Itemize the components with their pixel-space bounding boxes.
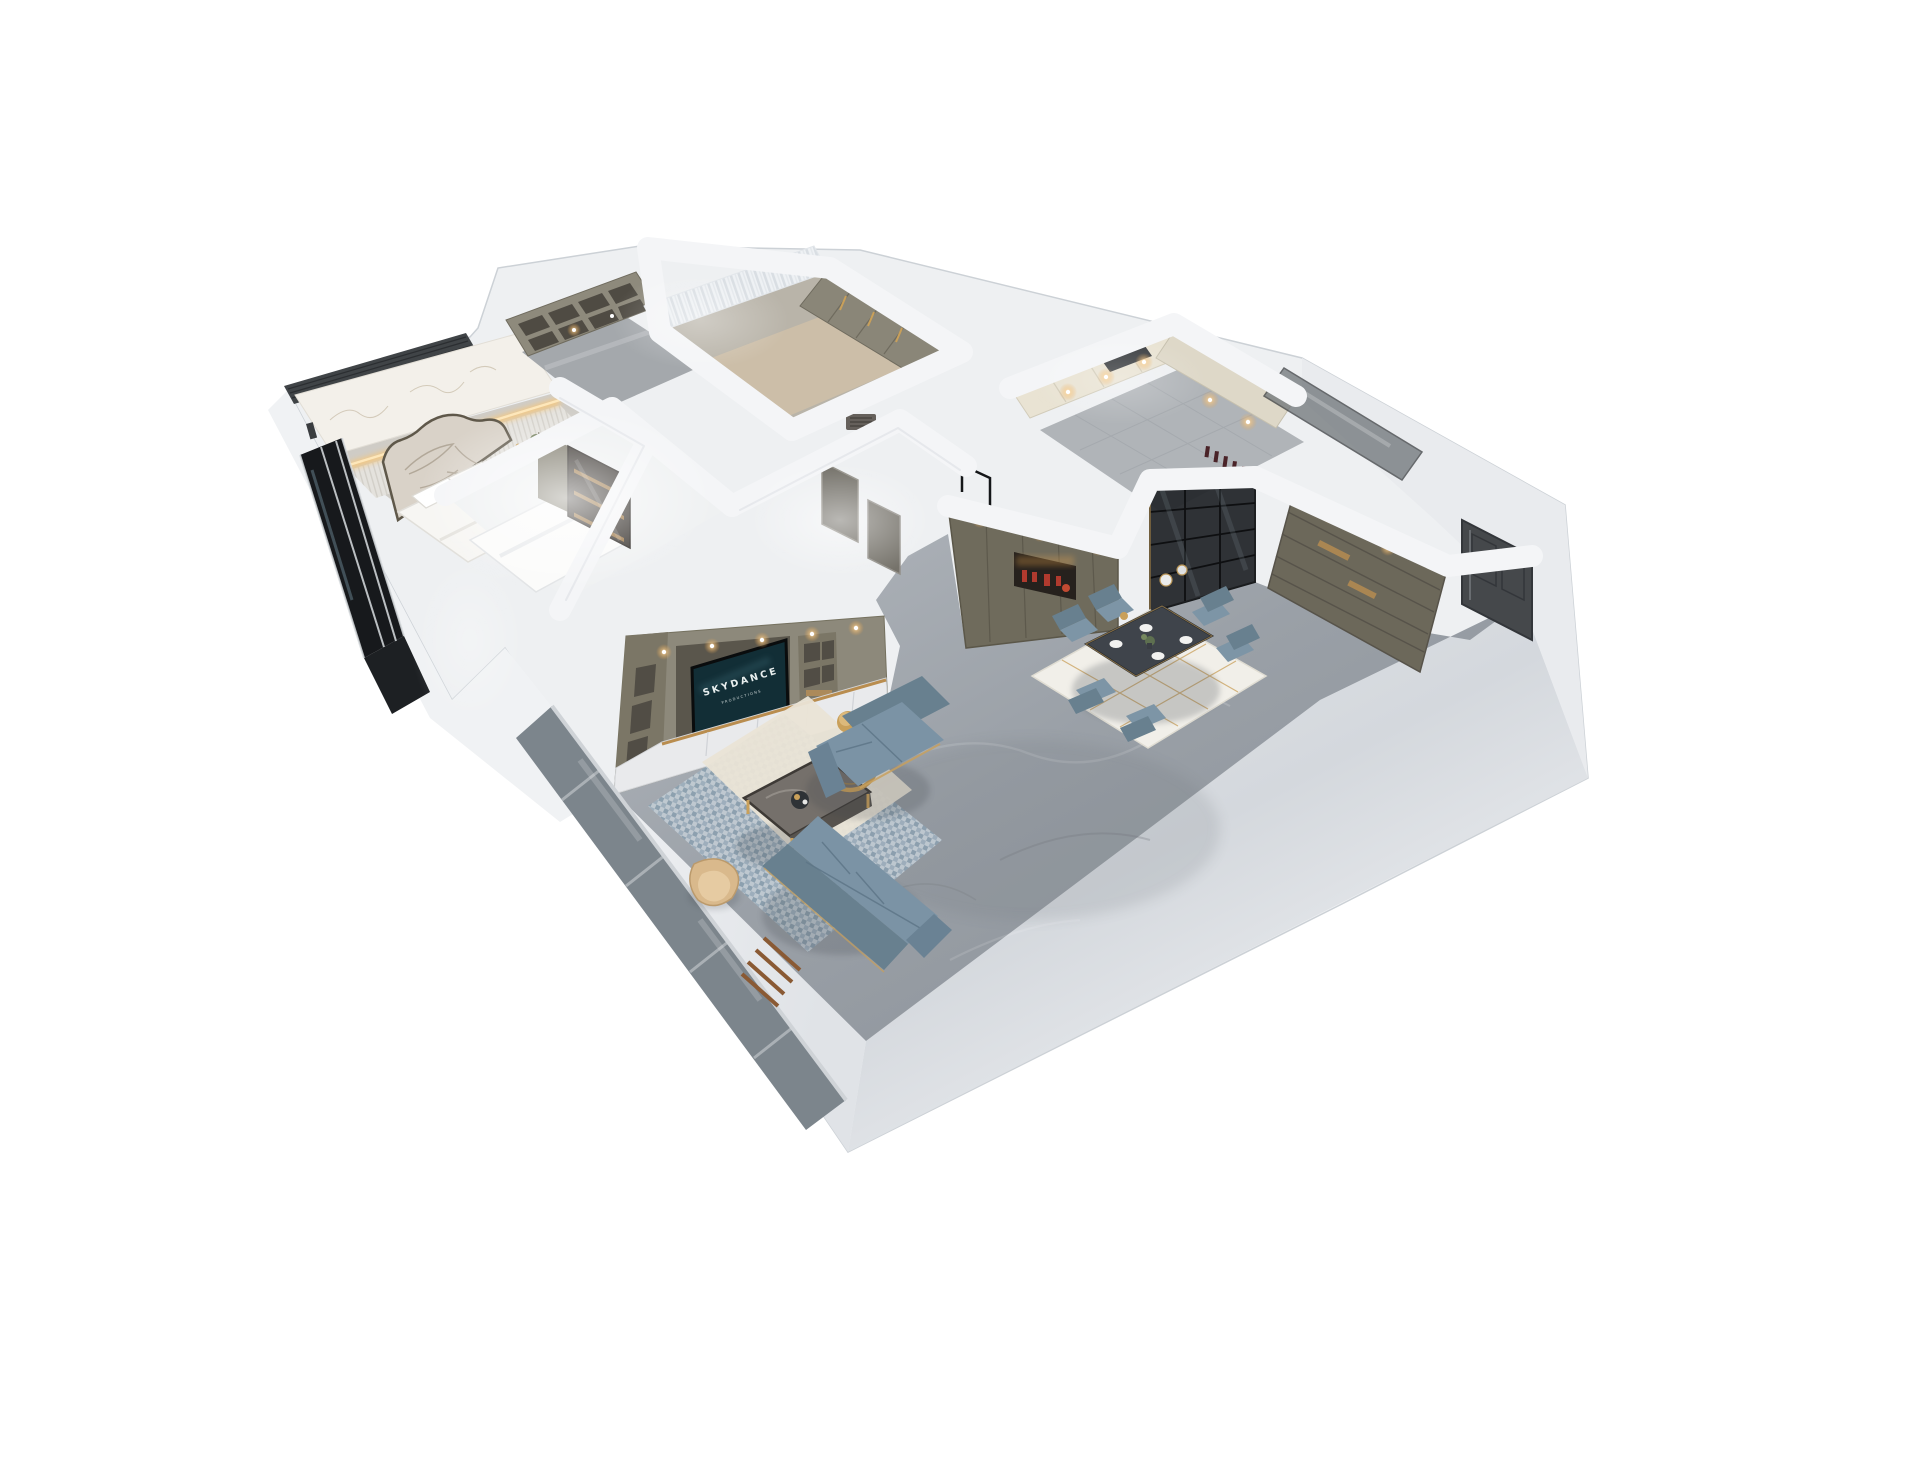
apartment-floorplan-render: SKYDANCE PRODUCTIONS	[0, 0, 1920, 1484]
niche-glow	[1016, 556, 1074, 566]
closet-downlight-core	[572, 328, 576, 332]
render-canvas: SKYDANCE PRODUCTIONS	[0, 0, 1920, 1484]
beige-accent-chair	[688, 859, 740, 910]
tray-item-white	[803, 800, 808, 805]
tray-item-gold	[794, 794, 800, 800]
